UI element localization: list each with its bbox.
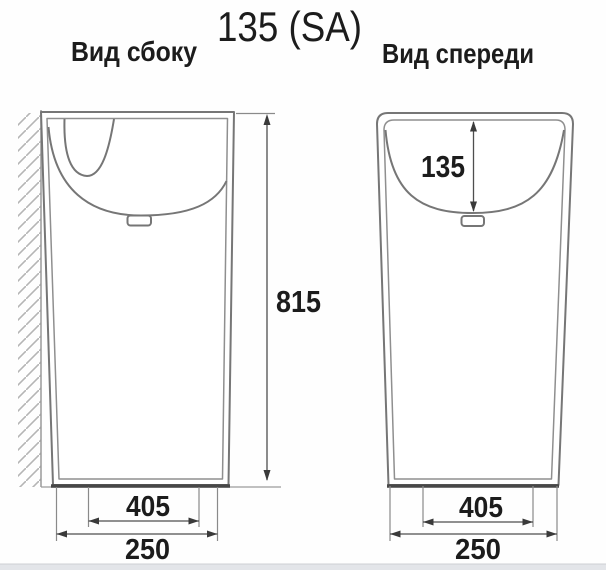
front-dim-250-arrow-left	[390, 531, 401, 538]
drawing-title: 135 (SA)	[217, 3, 362, 50]
wall-hatching	[18, 113, 41, 487]
side-view	[18, 110, 281, 487]
page: 135 (SA) Вид сбоку Вид спереди 815	[0, 0, 606, 570]
technical-drawing-canvas: 135 (SA) Вид сбоку Вид спереди 815	[0, 0, 606, 570]
side-dim-405-arrow-left	[89, 518, 100, 525]
side-view-label: Вид сбоку	[71, 36, 197, 67]
dim-815-arrow-up	[264, 114, 271, 125]
front-dim-405-arrow-right	[523, 519, 534, 526]
side-dim-405-arrow-right	[189, 518, 200, 525]
front-dim-405-value: 405	[459, 492, 503, 524]
front-view-label: Вид спереди	[382, 38, 534, 69]
side-dim-405-value: 405	[126, 491, 170, 523]
side-dim-250-arrow-left	[57, 531, 68, 538]
front-view-body-outline	[377, 113, 573, 485]
side-dim-250-value: 250	[125, 534, 170, 566]
footer-strip	[0, 564, 606, 570]
front-dim-405-arrow-left	[423, 519, 434, 526]
dim-135-value: 135	[421, 149, 465, 184]
side-view-drain	[128, 216, 152, 226]
side-height-dimension: 815	[236, 114, 321, 482]
footer-strip-fill	[0, 565, 606, 570]
dim-815-arrow-down	[264, 470, 271, 481]
side-view-body-outline	[41, 112, 234, 485]
front-base-inner-dimension: 405	[423, 486, 533, 527]
front-dim-250-arrow-right	[547, 531, 558, 538]
front-view-drain	[462, 216, 485, 226]
side-dim-250-arrow-right	[207, 531, 218, 538]
front-dim-250-value: 250	[455, 534, 501, 566]
front-view	[377, 113, 573, 486]
side-base-inner-dimension: 405	[89, 487, 200, 527]
dim-815-value: 815	[276, 284, 321, 319]
